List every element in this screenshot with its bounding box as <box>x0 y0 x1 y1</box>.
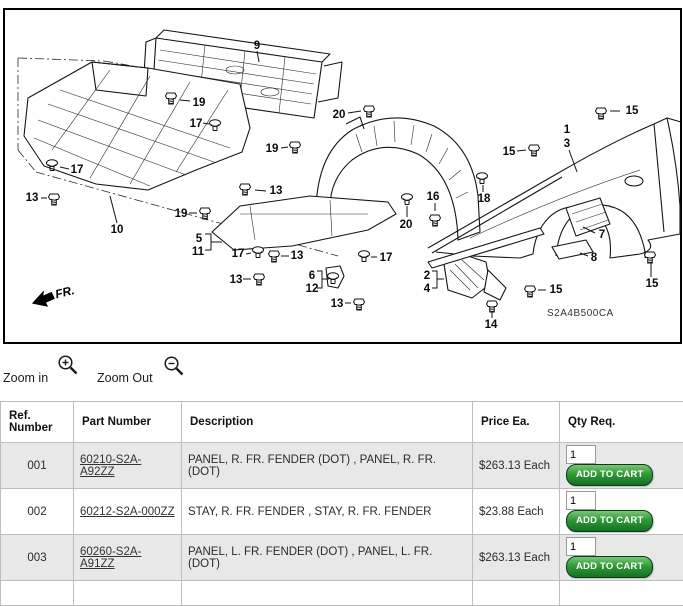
bolt-icon <box>49 194 60 205</box>
header-price: Price Ea. <box>473 402 560 443</box>
part-ref-label-17: 17 <box>380 252 393 264</box>
zoom-in-icon[interactable] <box>57 354 79 381</box>
parts-diagram-image: FR. S2A4B500CA 9191719201515131313191017… <box>0 0 683 350</box>
part-ref-label-10: 10 <box>111 224 124 236</box>
table-row: 00260212-S2A-000ZZSTAY, R. FR. FENDER , … <box>1 489 683 535</box>
empty-cell <box>74 581 182 606</box>
bolt-icon <box>254 274 265 285</box>
part-ref-label-15: 15 <box>503 146 516 158</box>
table-row: 00160210-S2A-A92ZZPANEL, R. FR. FENDER (… <box>1 443 683 489</box>
header-description: Description <box>182 402 473 443</box>
add-to-cart-button[interactable]: ADD TO CART <box>566 464 653 486</box>
clip-icon <box>402 194 413 205</box>
part-ref-label-15: 15 <box>626 105 639 117</box>
bolt-icon <box>596 108 607 119</box>
part-ref-label-12: 12 <box>306 283 319 295</box>
part-ref-label-11: 11 <box>192 246 205 258</box>
bolt-icon <box>240 184 251 195</box>
part-ref-label-19: 19 <box>193 97 206 109</box>
part-ref-label-13: 13 <box>331 298 344 310</box>
zoom-out-icon[interactable] <box>163 355 185 382</box>
part-ref-label-13: 13 <box>291 250 304 262</box>
part-ref-label-20: 20 <box>400 219 413 231</box>
fr-label: FR. <box>54 283 76 301</box>
fr-direction-arrow: FR. <box>29 283 76 310</box>
bolt-icon <box>645 252 656 263</box>
price-cell: $263.13 Each <box>473 443 560 489</box>
part-ref-label-14: 14 <box>485 319 498 331</box>
table-row-partial <box>1 581 683 606</box>
part-number-link[interactable]: 60212-S2A-000ZZ <box>80 506 175 518</box>
part-ref-label-4: 4 <box>424 283 431 295</box>
part-ref-label-9: 9 <box>254 40 260 52</box>
part-ref-label-7: 7 <box>599 229 605 241</box>
bolt-icon <box>290 142 301 153</box>
part-number-cell: 60210-S2A-A92ZZ <box>74 443 182 489</box>
parts-table: Ref. Number Part Number Description Pric… <box>0 401 683 606</box>
parts-diagram: FR. S2A4B500CA 9191719201515131313191017… <box>0 0 683 350</box>
qty-cell: ADD TO CART <box>560 443 683 489</box>
empty-cell <box>560 581 683 606</box>
empty-cell <box>182 581 473 606</box>
part-ref-label-13: 13 <box>270 185 283 197</box>
zoom-in-button[interactable]: Zoom in <box>3 371 48 385</box>
part-ref-label-6: 6 <box>309 270 315 282</box>
part-number-cell: 60212-S2A-000ZZ <box>74 489 182 535</box>
part-ref-label-17: 17 <box>71 164 84 176</box>
zoom-out-button[interactable]: Zoom Out <box>97 371 153 385</box>
add-to-cart-button[interactable]: ADD TO CART <box>566 510 653 532</box>
bolt-icon <box>525 286 536 297</box>
bolt-icon <box>529 145 540 156</box>
part-ref-label-2: 2 <box>424 270 430 282</box>
part-2-4-stay <box>444 256 506 300</box>
part-ref-label-1: 1 <box>564 124 571 136</box>
add-to-cart-button[interactable]: ADD TO CART <box>566 556 653 578</box>
description-cell: PANEL, R. FR. FENDER (DOT) , PANEL, R. F… <box>182 443 473 489</box>
part-ref-label-15: 15 <box>646 278 659 290</box>
diagram-code: S2A4B500CA <box>547 308 614 319</box>
part-number-link[interactable]: 60210-S2A-A92ZZ <box>80 454 141 478</box>
qty-input[interactable] <box>566 445 596 464</box>
header-part-number: Part Number <box>74 402 182 443</box>
part-ref-label-19: 19 <box>175 208 188 220</box>
bolt-icon <box>354 299 365 310</box>
part-ref-label-17: 17 <box>232 248 245 260</box>
part-ref-label-18: 18 <box>478 193 491 205</box>
part-ref-label-16: 16 <box>427 191 440 203</box>
clip-icon <box>253 247 264 258</box>
zoom-controls: Zoom in Zoom Out <box>0 350 683 401</box>
bolt-icon <box>487 301 498 312</box>
qty-cell: ADD TO CART <box>560 489 683 535</box>
empty-cell <box>473 581 560 606</box>
header-ref-number: Ref. Number <box>1 402 74 443</box>
empty-cell <box>1 581 74 606</box>
clip-icon <box>477 173 488 184</box>
part-ref-label-13: 13 <box>26 192 39 204</box>
part-5-11-cover <box>212 196 396 250</box>
clip-icon <box>359 251 370 262</box>
ref-number-cell: 001 <box>1 443 74 489</box>
price-cell: $23.88 Each <box>473 489 560 535</box>
part-ref-label-5: 5 <box>196 233 203 245</box>
part-ref-label-17: 17 <box>190 118 203 130</box>
part-ref-label-13: 13 <box>230 274 243 286</box>
bolt-icon <box>364 106 375 117</box>
part-ref-label-8: 8 <box>591 252 598 264</box>
bolt-icon <box>269 251 280 262</box>
part-ref-label-15: 15 <box>550 284 563 296</box>
part-ref-label-3: 3 <box>564 138 570 150</box>
part-ref-label-19: 19 <box>266 143 279 155</box>
qty-input[interactable] <box>566 491 596 510</box>
description-cell: STAY, R. FR. FENDER , STAY, R. FR. FENDE… <box>182 489 473 535</box>
part-ref-label-20: 20 <box>333 109 346 121</box>
bolt-icon <box>200 208 211 219</box>
header-qty: Qty Req. <box>560 402 683 443</box>
bolt-icon <box>430 215 441 226</box>
table-header-row: Ref. Number Part Number Description Pric… <box>1 402 683 443</box>
ref-number-cell: 002 <box>1 489 74 535</box>
qty-input[interactable] <box>566 537 596 556</box>
